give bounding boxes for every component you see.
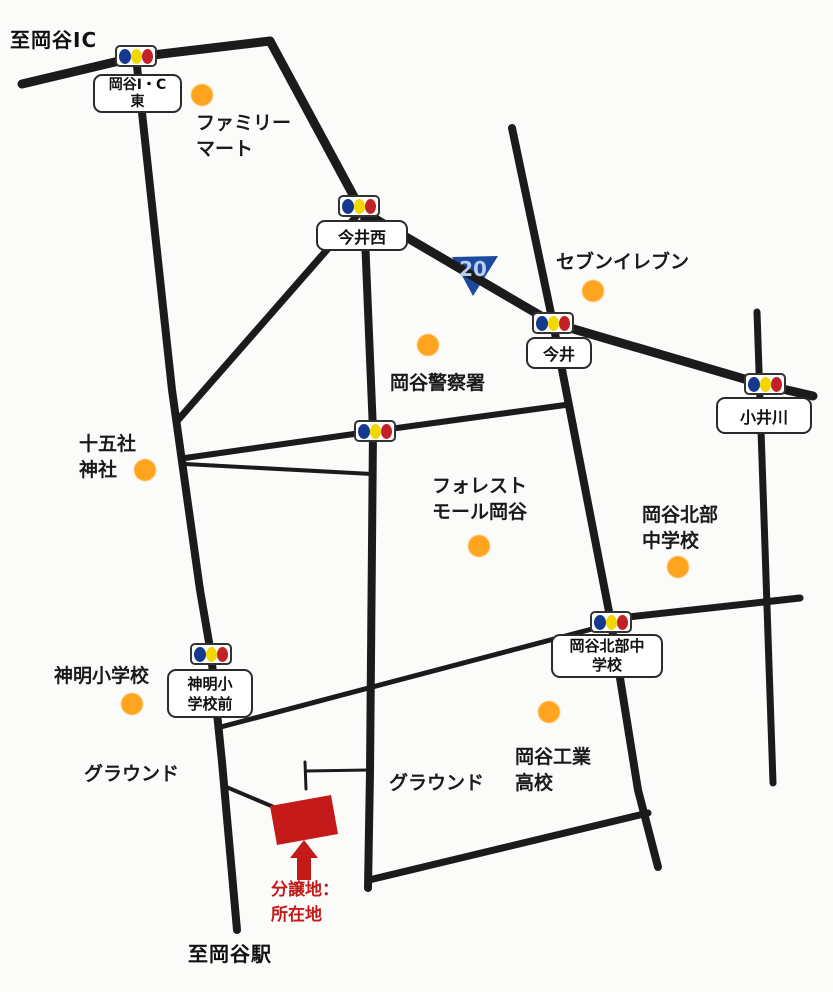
site-boundary-tick bbox=[305, 762, 306, 789]
traffic-light-imai-nishi bbox=[338, 195, 380, 217]
title-to-okaya-ic: 至岡谷IC bbox=[10, 24, 97, 53]
landmark-label: ファミリー bbox=[196, 110, 291, 136]
signal-blue-icon bbox=[358, 424, 370, 439]
traffic-light-okaya-ic-east bbox=[115, 45, 157, 67]
site-boundary-horizontal bbox=[306, 770, 369, 771]
landmark-label: 十五社 bbox=[79, 431, 136, 457]
signal-red-icon bbox=[142, 49, 153, 64]
landmark-label: フォレスト bbox=[432, 473, 527, 499]
landmark-label: 岡谷北部 bbox=[642, 502, 718, 528]
landmark-jugosha-shrine: 十五社 神社 bbox=[79, 431, 136, 483]
intersection-label-shinmei: 神明小 学校前 bbox=[167, 669, 253, 718]
label-line: 東 bbox=[131, 94, 145, 111]
landmark-shinmei-elementary: 神明小学校 bbox=[54, 663, 149, 689]
landmark-label: マート bbox=[196, 136, 291, 162]
signal-yellow-icon bbox=[548, 316, 559, 331]
site-marker-caption: 分譲地： 所在地 bbox=[271, 878, 339, 928]
familymart-dot bbox=[191, 84, 213, 106]
signal-red-icon bbox=[381, 424, 392, 439]
landmark-familymart: ファミリー マート bbox=[196, 110, 291, 162]
signal-yellow-icon bbox=[206, 647, 217, 662]
intersection-label-imai-nishi: 今井西 bbox=[316, 220, 408, 251]
signal-yellow-icon bbox=[760, 377, 771, 392]
okaya-technical-hs-dot bbox=[538, 701, 560, 723]
landmark-label: グラウンド bbox=[389, 770, 484, 796]
jugosha-shrine-dot bbox=[134, 459, 156, 481]
landmark-ground-west: グラウンド bbox=[84, 761, 179, 787]
location-map: 20 至岡谷IC 至岡谷駅 岡谷I・C 東 今井西 今井 小井川 岡谷北部中 学… bbox=[0, 0, 833, 992]
signal-blue-icon bbox=[342, 199, 354, 214]
road-thin-lower bbox=[185, 464, 372, 474]
okaya-hokubu-jhs-dot bbox=[667, 556, 689, 578]
landmark-label: 神社 bbox=[79, 457, 136, 483]
shinmei-elementary-dot bbox=[121, 693, 143, 715]
landmark-forest-mall: フォレスト モール岡谷 bbox=[432, 473, 527, 525]
landmark-label: モール岡谷 bbox=[432, 499, 527, 525]
traffic-light-central bbox=[354, 420, 396, 442]
landmark-ground-south: グラウンド bbox=[389, 770, 484, 796]
signal-yellow-icon bbox=[354, 199, 365, 214]
landmark-okaya-hokubu-jhs: 岡谷北部 中学校 bbox=[642, 502, 718, 554]
label-line: 岡谷I・C bbox=[109, 77, 166, 94]
signal-red-icon bbox=[617, 615, 628, 630]
site-marker-arrow bbox=[290, 840, 318, 880]
signal-blue-icon bbox=[194, 647, 206, 662]
signal-blue-icon bbox=[536, 316, 548, 331]
landmark-okaya-technical-hs: 岡谷工業 高校 bbox=[515, 744, 591, 796]
label-line: 神明小 bbox=[187, 674, 232, 694]
title-to-okaya-station: 至岡谷駅 bbox=[188, 938, 272, 967]
site-caption-line: 所在地 bbox=[271, 903, 339, 928]
route-20-number: 20 bbox=[450, 257, 496, 281]
okaya-police-dot bbox=[417, 334, 439, 356]
landmark-label: 神明小学校 bbox=[54, 663, 149, 689]
site-marker-rect bbox=[270, 795, 338, 845]
traffic-light-shinmei bbox=[190, 643, 232, 665]
signal-yellow-icon bbox=[131, 49, 142, 64]
road-to-okaya-station bbox=[136, 57, 237, 930]
landmark-label: グラウンド bbox=[84, 761, 179, 787]
signal-red-icon bbox=[365, 199, 376, 214]
intersection-label-imai: 今井 bbox=[526, 337, 592, 369]
label-line: 学校 bbox=[592, 656, 622, 675]
landmark-label: 岡谷警察署 bbox=[390, 370, 485, 396]
landmark-label: 岡谷工業 bbox=[515, 744, 591, 770]
label-line: 今井 bbox=[543, 341, 575, 365]
road-south-diagonal bbox=[369, 813, 648, 880]
road-network bbox=[0, 0, 833, 992]
signal-blue-icon bbox=[748, 377, 760, 392]
traffic-light-okaya-hokubu bbox=[590, 611, 632, 633]
forest-mall-dot bbox=[468, 535, 490, 557]
signal-red-icon bbox=[559, 316, 570, 331]
road-site-access bbox=[224, 786, 276, 808]
label-line: 小井川 bbox=[740, 404, 788, 428]
traffic-light-koikawa bbox=[744, 373, 786, 395]
traffic-light-imai bbox=[532, 312, 574, 334]
label-line: 今井西 bbox=[338, 224, 386, 248]
intersection-label-okaya-hokubu: 岡谷北部中 学校 bbox=[551, 634, 663, 678]
signal-yellow-icon bbox=[370, 424, 381, 439]
landmark-label: 中学校 bbox=[642, 528, 718, 554]
signal-red-icon bbox=[217, 647, 228, 662]
landmark-seven-eleven: セブンイレブン bbox=[556, 249, 689, 275]
road-imai-nishi-south bbox=[364, 213, 373, 888]
seven-eleven-dot bbox=[582, 280, 604, 302]
label-line: 岡谷北部中 bbox=[569, 637, 644, 656]
signal-blue-icon bbox=[119, 49, 131, 64]
landmark-label: セブンイレブン bbox=[556, 249, 689, 275]
road-hokubu-east bbox=[628, 598, 800, 617]
signal-yellow-icon bbox=[606, 615, 617, 630]
landmark-okaya-police: 岡谷警察署 bbox=[390, 370, 485, 396]
site-caption-line: 分譲地： bbox=[271, 878, 339, 903]
signal-red-icon bbox=[771, 377, 782, 392]
intersection-label-koikawa: 小井川 bbox=[716, 397, 812, 434]
intersection-label-okaya-ic-east: 岡谷I・C 東 bbox=[93, 74, 182, 113]
label-line: 学校前 bbox=[187, 694, 232, 714]
landmark-label: 高校 bbox=[515, 770, 591, 796]
signal-blue-icon bbox=[594, 615, 606, 630]
